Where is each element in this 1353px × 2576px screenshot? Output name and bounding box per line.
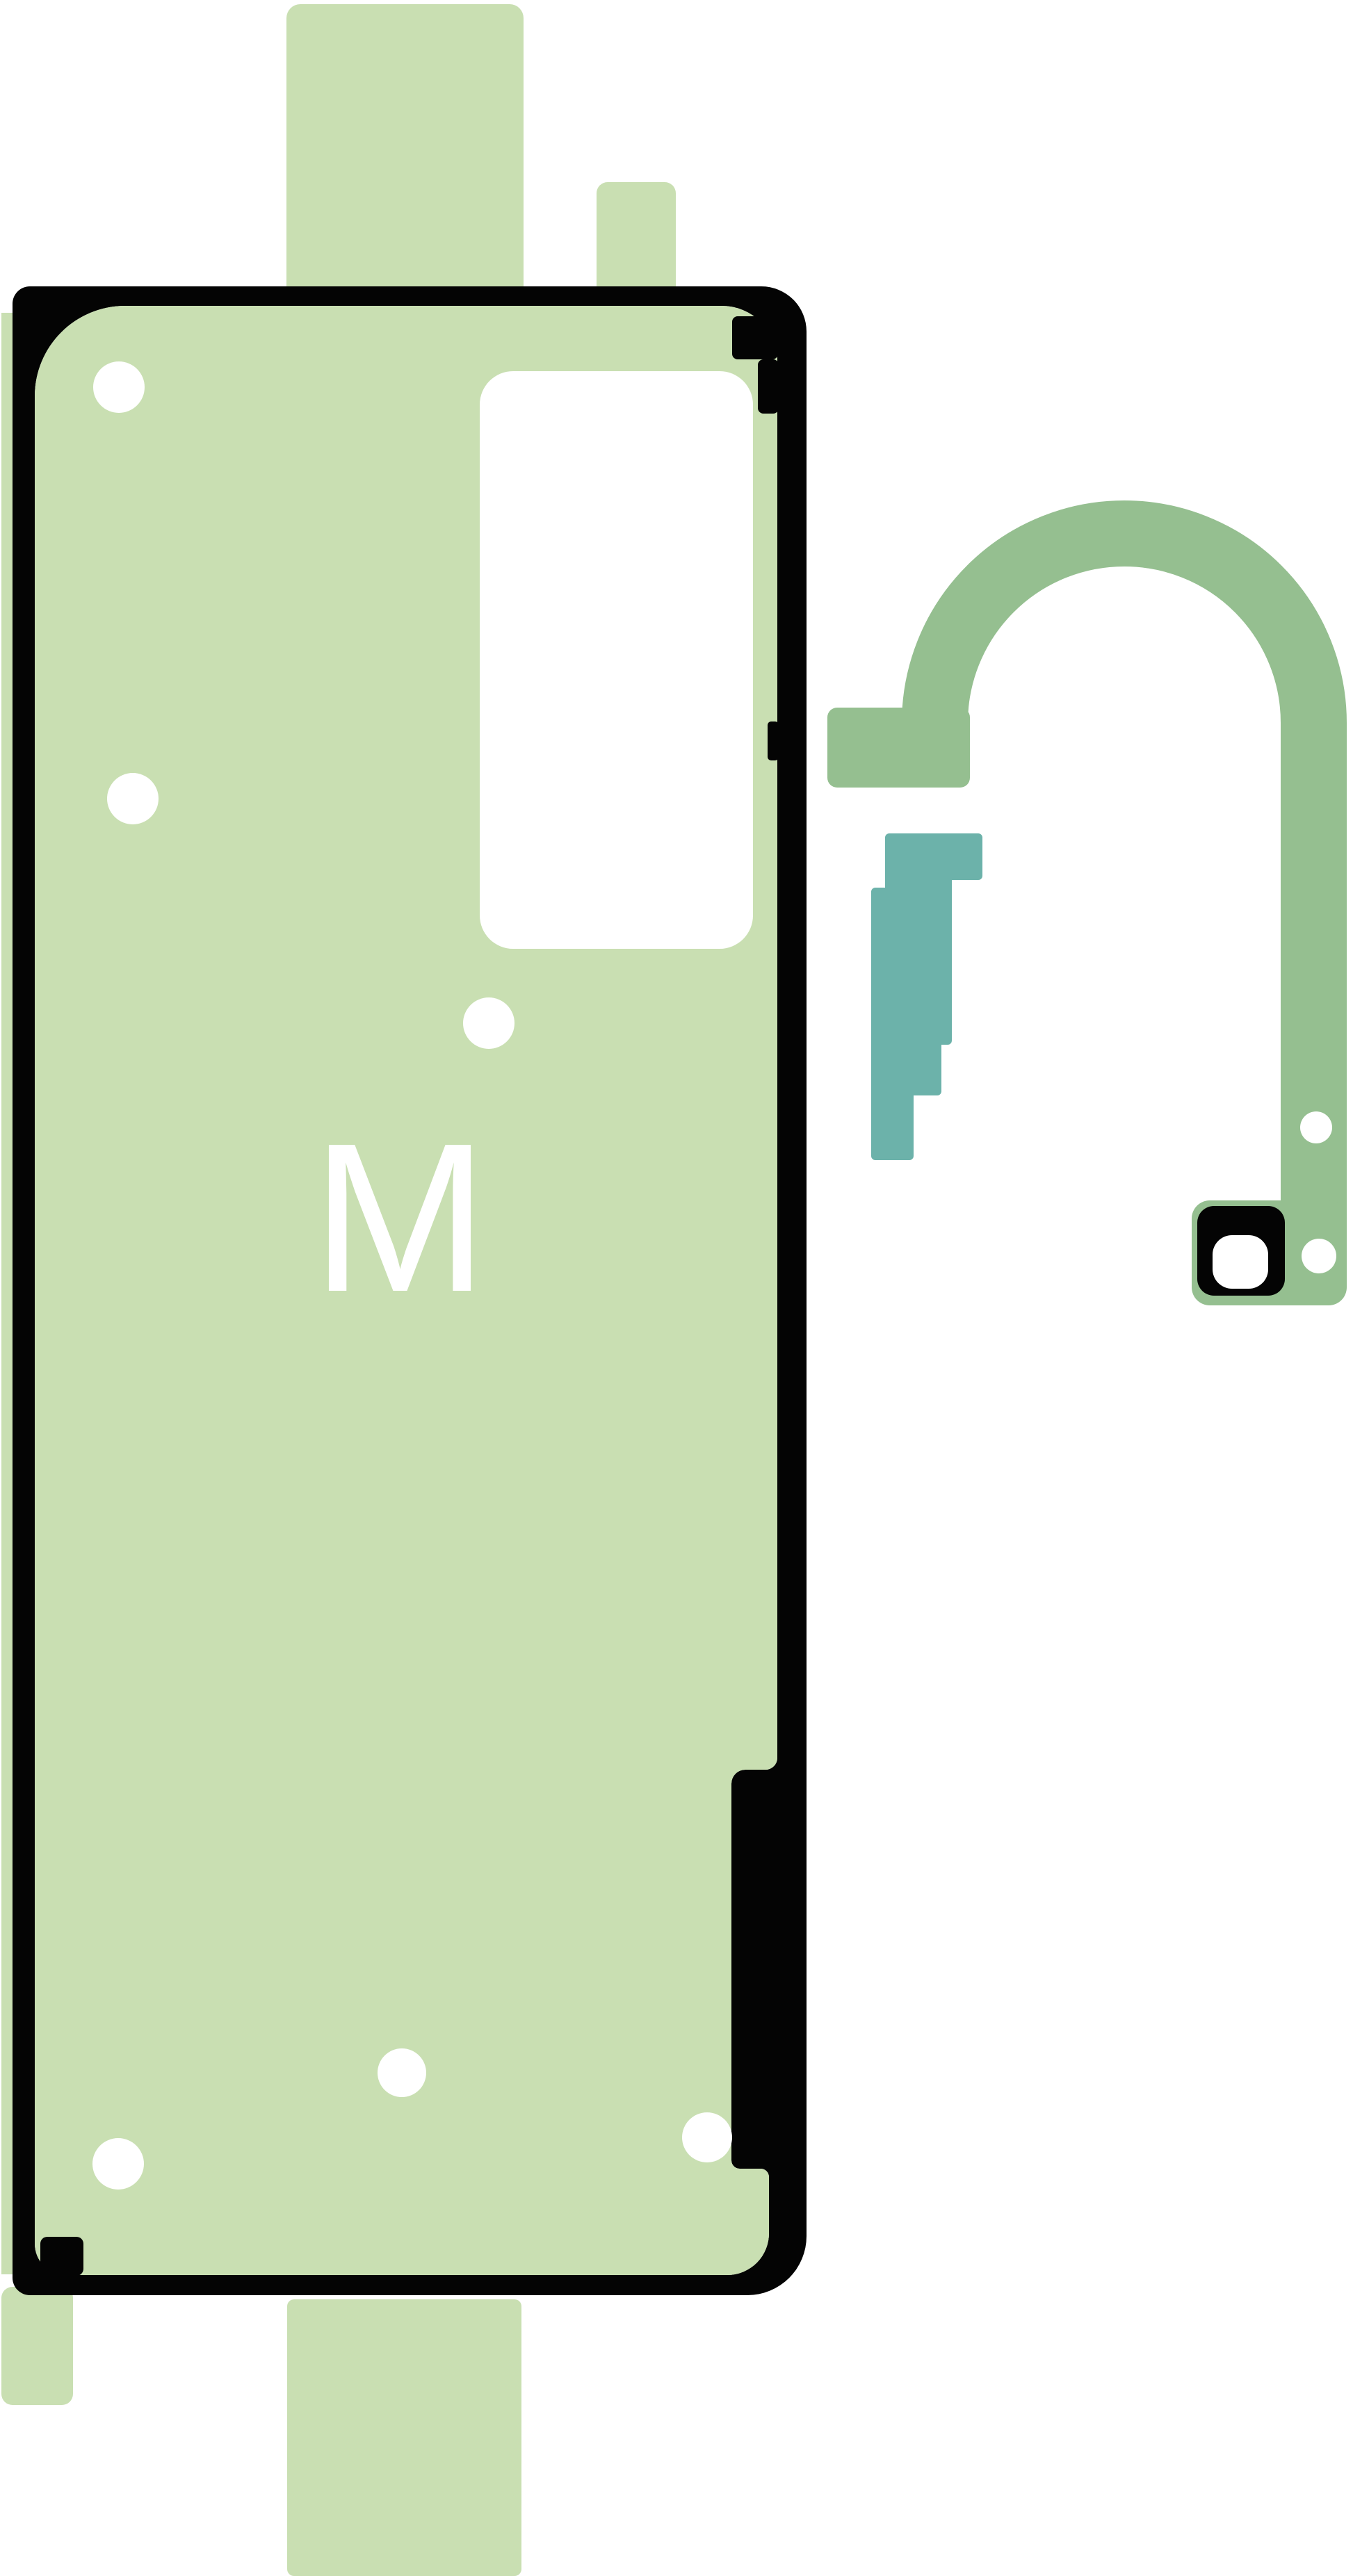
flex-foot-pad: [827, 708, 970, 788]
alignment-hole-bottom-left: [92, 2138, 144, 2190]
notch-bottom-left: [40, 2237, 83, 2276]
liner-tab-bottom-small: [1, 2287, 73, 2405]
alignment-hole-bottom-right: [682, 2112, 732, 2162]
flex-hole-upper: [1300, 1111, 1332, 1143]
alignment-hole-top-left: [93, 361, 145, 413]
letter-m-marking: M: [311, 1099, 488, 1336]
alignment-hole-mid-left: [107, 773, 159, 824]
alignment-hole-center: [463, 997, 515, 1049]
liner-tab-bottom-large: [287, 2299, 521, 2576]
camera-lens-opening: [1213, 1235, 1268, 1289]
camera-window-cutout: [480, 371, 753, 949]
spacer-piece: [875, 838, 978, 1156]
liner-edge-strip-left: [1, 313, 13, 2274]
spacer-adhesive: [875, 838, 978, 1156]
flex-hole-lower: [1302, 1239, 1336, 1273]
alignment-hole-bottom-center: [378, 2048, 426, 2097]
back-cover-adhesive-sheet: M: [13, 286, 807, 2295]
product-illustration: M: [0, 0, 1353, 2576]
notch-right-mid: [768, 722, 779, 760]
flex-arch-band: [935, 534, 1314, 1280]
notch-top-right-b: [758, 359, 779, 414]
liner-tab-top-large: [286, 4, 524, 313]
notch-top-right-a: [732, 316, 778, 359]
